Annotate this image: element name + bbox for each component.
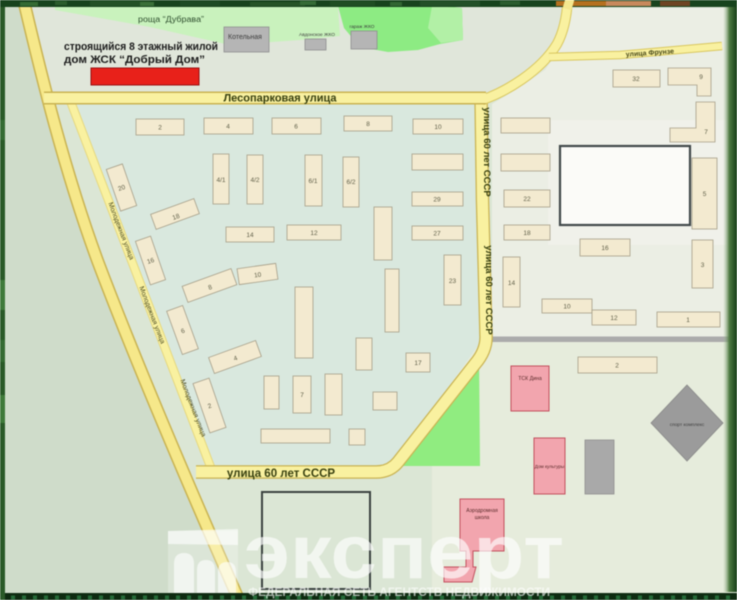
svg-text:4/1: 4/1: [216, 177, 225, 184]
svg-text:улица 60 лет СССР: улица 60 лет СССР: [227, 468, 336, 480]
svg-text:22: 22: [523, 196, 531, 203]
svg-text:ФЕДЕРАЛЬНАЯ СЕТЬ АГЕНТСТВ НЕДВ: ФЕДЕРАЛЬНАЯ СЕТЬ АГЕНТСТВ НЕДВИЖИМОСТИ: [248, 585, 550, 599]
svg-text:1: 1: [686, 317, 690, 324]
svg-text:Котельная: Котельная: [228, 34, 262, 41]
svg-text:8: 8: [366, 121, 370, 128]
svg-text:12: 12: [610, 315, 618, 322]
svg-text:7: 7: [300, 392, 304, 399]
svg-text:Дом культуры: Дом культуры: [535, 464, 564, 469]
svg-text:улица 60 лет СССР: улица 60 лет СССР: [481, 107, 492, 197]
svg-text:2: 2: [158, 125, 162, 132]
svg-text:7: 7: [704, 129, 708, 136]
svg-text:дом ЖСК “Добрый Дом”: дом ЖСК “Добрый Дом”: [64, 54, 205, 66]
svg-text:4/2: 4/2: [250, 177, 259, 184]
svg-text:гараж ЖКО: гараж ЖКО: [349, 24, 374, 30]
svg-text:6/2: 6/2: [346, 179, 355, 186]
svg-text:18: 18: [523, 230, 531, 237]
svg-text:Авдонское ЖКО: Авдонское ЖКО: [299, 32, 335, 38]
svg-text:5: 5: [703, 191, 707, 198]
svg-text:2: 2: [615, 363, 619, 370]
svg-text:32: 32: [632, 76, 640, 83]
svg-text:16: 16: [601, 245, 609, 252]
svg-text:14: 14: [508, 280, 516, 287]
svg-text:6/1: 6/1: [308, 178, 317, 185]
svg-text:4: 4: [226, 124, 230, 131]
svg-text:29: 29: [433, 197, 441, 204]
svg-text:10: 10: [434, 124, 442, 131]
svg-text:3: 3: [701, 262, 705, 269]
svg-text:ТСК Дина: ТСК Дина: [518, 376, 542, 382]
svg-text:9: 9: [699, 74, 703, 81]
svg-text:спорт комплекс: спорт комплекс: [670, 423, 705, 428]
svg-text:17: 17: [414, 360, 422, 367]
svg-text:эксперт: эксперт: [244, 510, 564, 595]
svg-text:27: 27: [433, 231, 441, 238]
svg-text:роща “Дубрава”: роща “Дубрава”: [138, 15, 204, 24]
svg-text:23: 23: [449, 278, 457, 285]
svg-text:10: 10: [563, 304, 571, 311]
svg-text:строящийся 8 этажный жилой: строящийся 8 этажный жилой: [64, 41, 218, 53]
svg-text:6: 6: [294, 124, 298, 131]
svg-text:12: 12: [310, 230, 318, 237]
svg-text:14: 14: [246, 232, 254, 239]
svg-text:улица 60 лет СССР: улица 60 лет СССР: [483, 245, 494, 335]
svg-text:10: 10: [254, 271, 263, 279]
svg-text:Лесопарковая улица: Лесопарковая улица: [223, 93, 337, 105]
